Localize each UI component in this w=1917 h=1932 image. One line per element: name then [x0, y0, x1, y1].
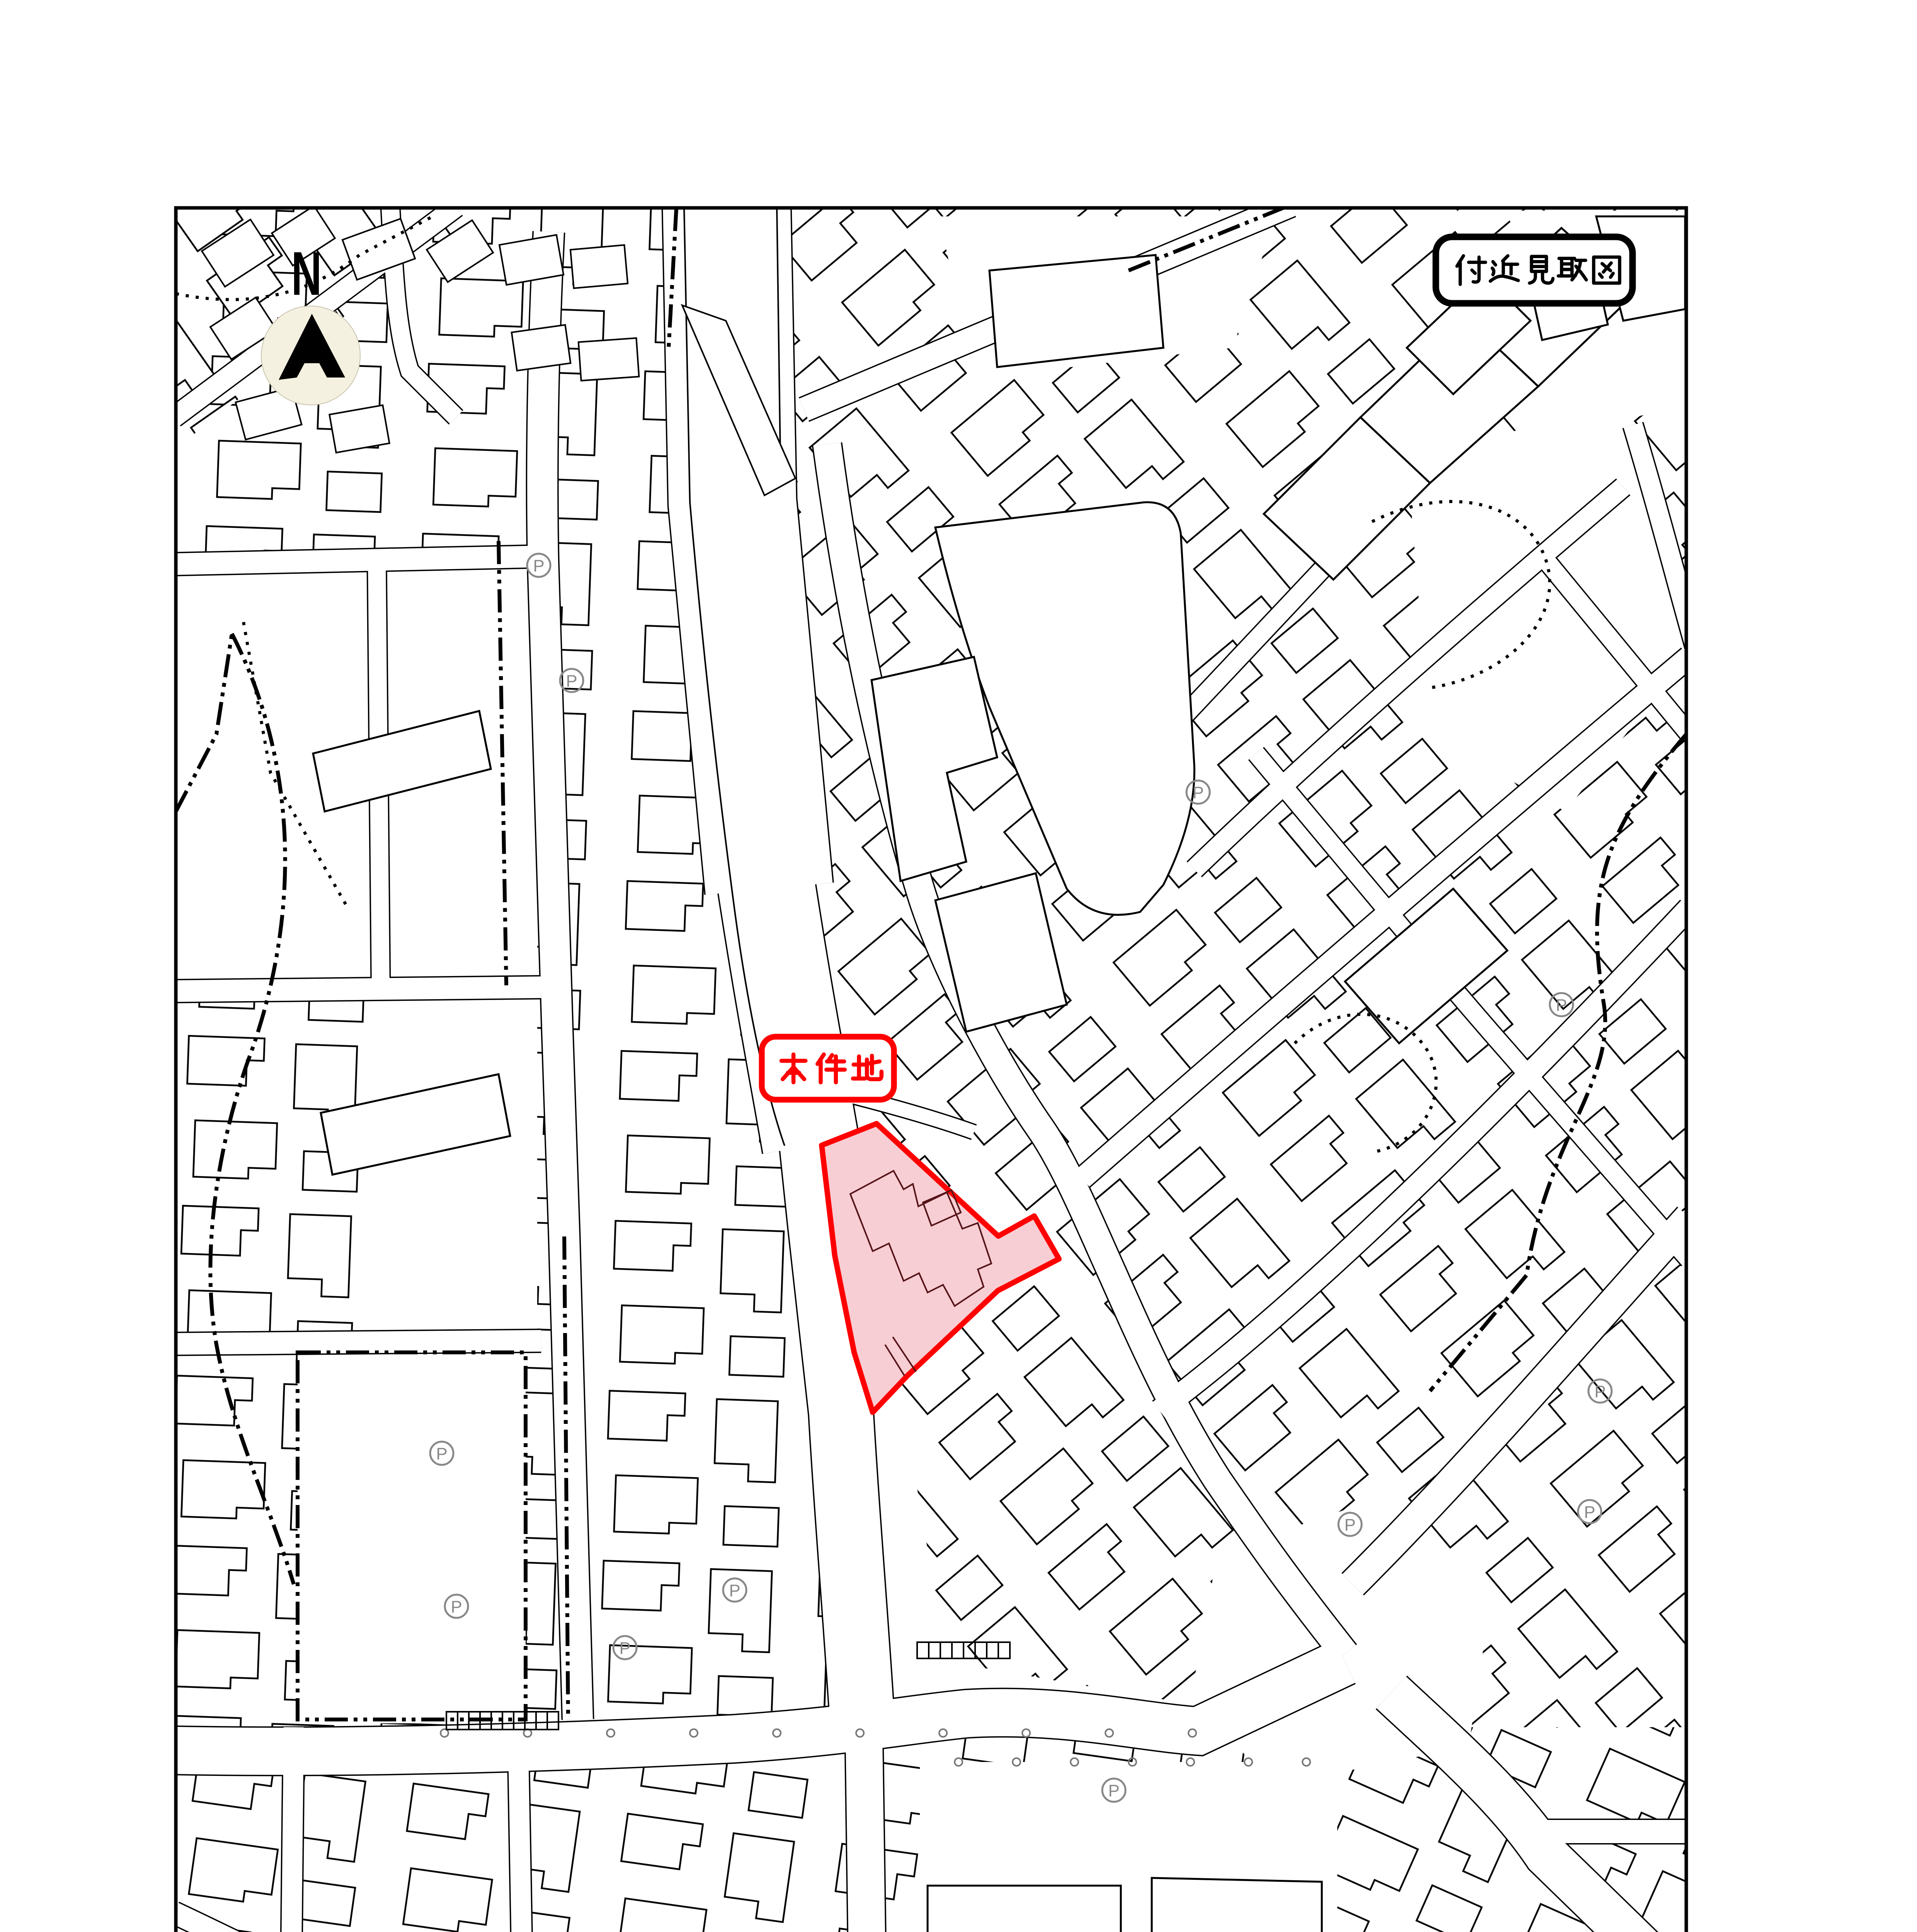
svg-text:P: P	[1594, 1382, 1605, 1401]
svg-text:P: P	[1192, 783, 1204, 802]
svg-text:P: P	[436, 1444, 447, 1463]
svg-text:N: N	[291, 239, 322, 308]
svg-text:P: P	[451, 1597, 462, 1616]
svg-text:P: P	[1584, 1503, 1595, 1522]
svg-text:P: P	[1108, 1781, 1119, 1800]
svg-text:P: P	[533, 556, 544, 575]
svg-text:P: P	[1556, 996, 1567, 1015]
svg-text:P: P	[566, 672, 577, 690]
svg-text:P: P	[619, 1639, 630, 1658]
svg-text:P: P	[729, 1581, 740, 1600]
svg-text:P: P	[1344, 1515, 1355, 1534]
